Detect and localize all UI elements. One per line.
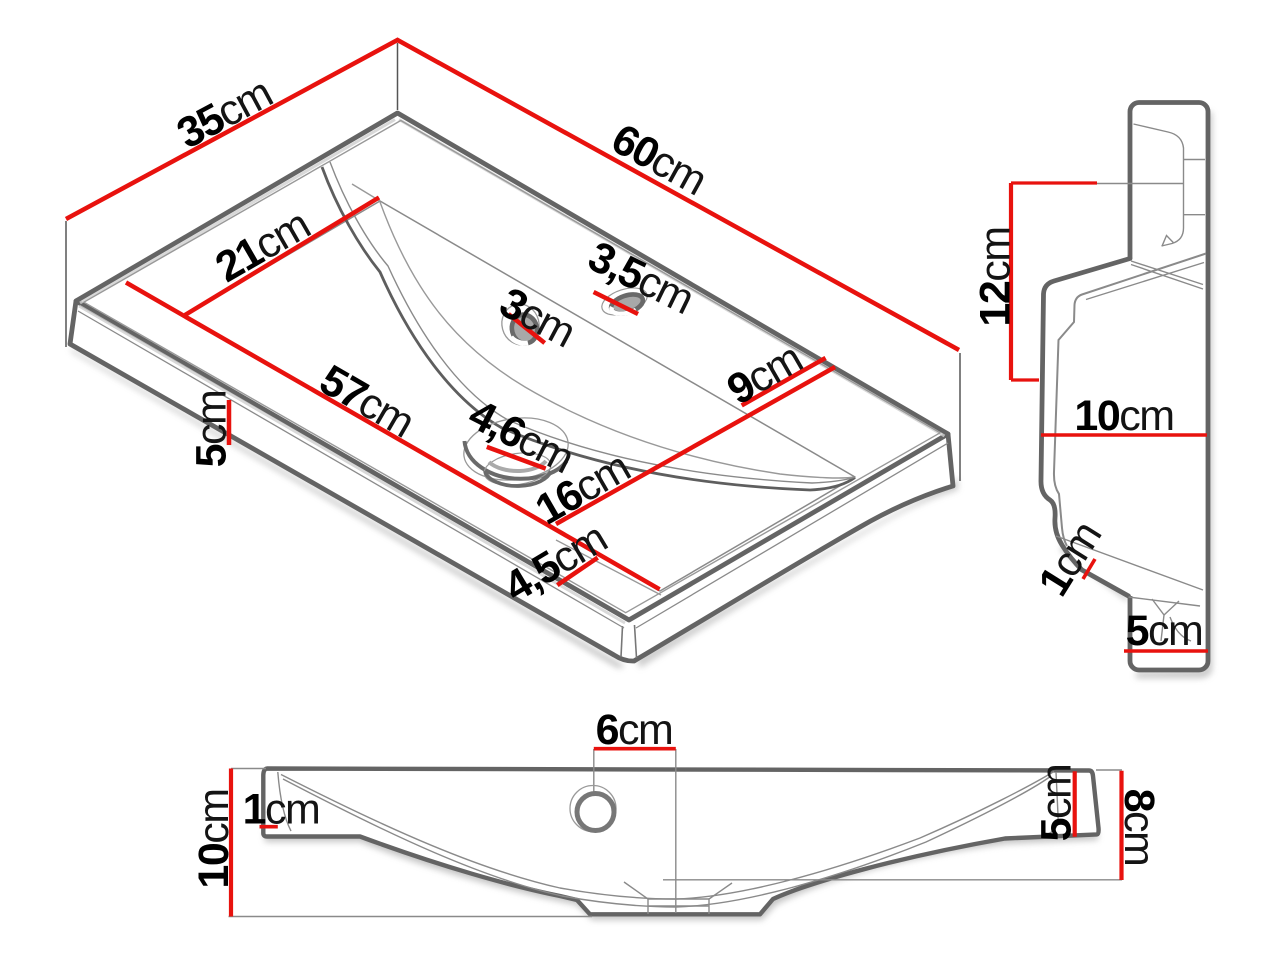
- svg-text:12cm: 12cm: [972, 227, 1020, 326]
- svg-text:6cm: 6cm: [596, 706, 673, 754]
- svg-text:5cm: 5cm: [1033, 765, 1081, 842]
- svg-text:8cm: 8cm: [1115, 789, 1163, 866]
- svg-text:10cm: 10cm: [190, 789, 238, 888]
- svg-text:5cm: 5cm: [188, 391, 236, 468]
- svg-text:1cm: 1cm: [243, 786, 320, 834]
- svg-text:5cm: 5cm: [1126, 607, 1203, 655]
- svg-text:10cm: 10cm: [1074, 392, 1173, 440]
